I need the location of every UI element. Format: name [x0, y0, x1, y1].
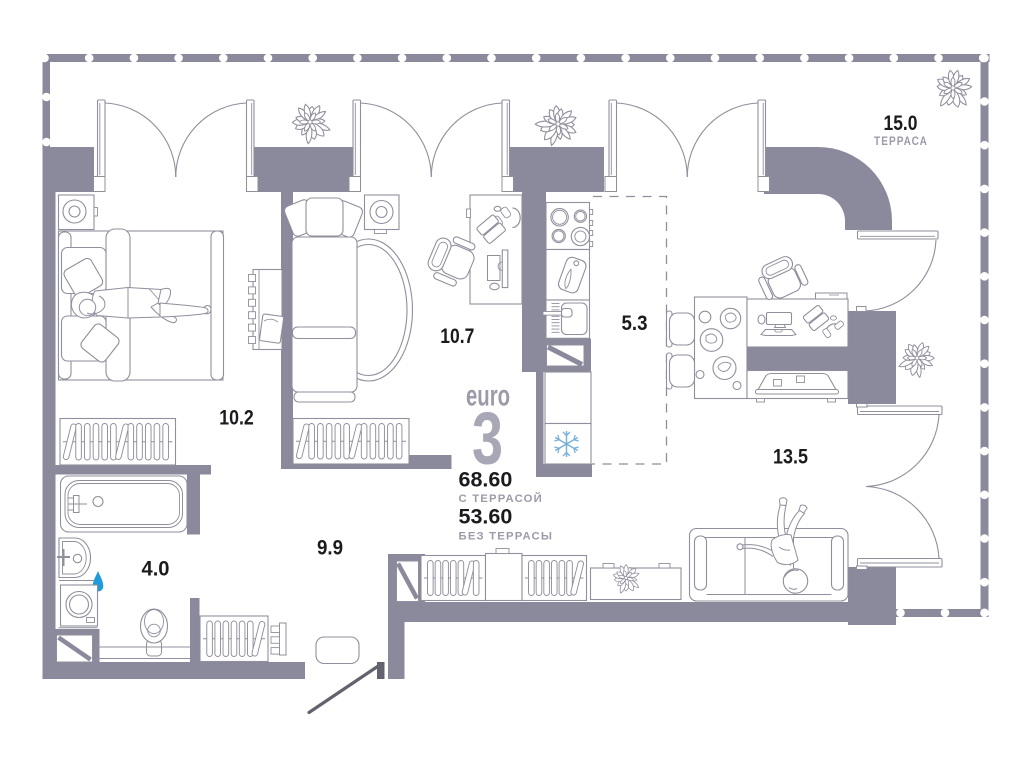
- svg-text:68.60: 68.60: [459, 468, 513, 492]
- svg-text:4.0: 4.0: [142, 557, 170, 581]
- svg-text:10.7: 10.7: [440, 324, 474, 348]
- svg-text:С ТЕРРАСОЙ: С ТЕРРАСОЙ: [459, 492, 543, 505]
- svg-text:9.9: 9.9: [317, 536, 343, 560]
- svg-text:ТЕРРАСА: ТЕРРАСА: [874, 136, 928, 148]
- svg-text:5.3: 5.3: [622, 311, 648, 335]
- svg-text:13.5: 13.5: [773, 445, 808, 469]
- svg-text:БЕЗ ТЕРРАСЫ: БЕЗ ТЕРРАСЫ: [459, 531, 554, 543]
- svg-text:10.2: 10.2: [219, 406, 254, 430]
- svg-text:15.0: 15.0: [884, 111, 918, 135]
- svg-text:53.60: 53.60: [459, 505, 513, 529]
